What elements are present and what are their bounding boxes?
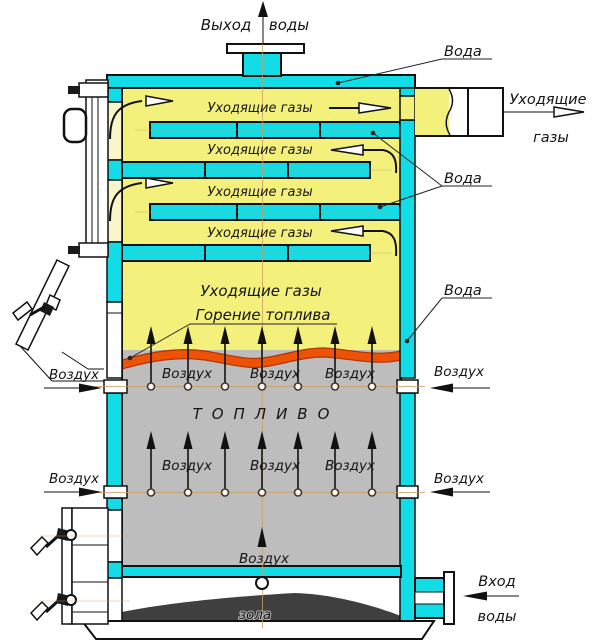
- air-arrow-left-upper: [44, 384, 102, 393]
- water-outlet-label-2: воды: [269, 16, 309, 34]
- air-label-left-lower: Воздух: [49, 471, 100, 487]
- air-label-right-upper: Воздух: [434, 364, 485, 380]
- grate-bar: [122, 566, 401, 577]
- flue-gases-row-1: Уходящие газы: [207, 101, 312, 116]
- combustion-label: Горение топлива: [196, 306, 331, 324]
- fuel-loading-door[interactable]: [13, 260, 104, 381]
- ash-label: зола: [239, 607, 271, 623]
- air-arrow-right-upper: [430, 384, 490, 393]
- air-arrow-right-lower: [430, 488, 490, 497]
- right-wall: [400, 88, 415, 622]
- ash-pit-peephole: [256, 577, 268, 589]
- left-wall: [107, 88, 122, 622]
- boiler-diagram: Выход воды Вода Вода Вода Уходящие газы …: [0, 0, 600, 641]
- water-inlet-label-2: воды: [478, 609, 517, 625]
- flue-exit-label-2: газы: [533, 130, 569, 146]
- inlet-flange: [444, 572, 454, 624]
- air-label-left-upper: Воздух: [49, 367, 100, 383]
- air-label-right-lower: Воздух: [434, 471, 485, 487]
- water-inlet-label-1: Вход: [478, 574, 515, 590]
- water-outlet-arrow: [258, 1, 268, 44]
- ash-door[interactable]: [31, 508, 108, 624]
- flue-exit-label-1: Уходящие: [509, 92, 586, 108]
- water-callout-3: Вода: [444, 283, 482, 299]
- water-callout-2: Вода: [444, 171, 482, 187]
- door-handle[interactable]: [64, 109, 86, 142]
- flue-exit-pipe: [400, 88, 503, 136]
- flue-gases-row-3: Уходящие газы: [207, 185, 312, 200]
- water-inlet-pipe: [415, 572, 454, 624]
- air-label-bed2-c: Воздух: [325, 458, 376, 474]
- flue-exit-arrow: [504, 107, 584, 117]
- air-label-bottom-center: Воздух: [239, 551, 290, 567]
- air-label-bed2-a: Воздух: [162, 458, 213, 474]
- flue-gases-row-4: Уходящие газы: [207, 226, 312, 241]
- air-label-bed1-c: Воздух: [325, 366, 376, 382]
- flue-gases-row-2: Уходящие газы: [207, 143, 312, 158]
- water-outlet-pipe: [227, 44, 304, 76]
- air-label-bed1-a: Воздух: [162, 366, 213, 382]
- water-inlet-arrow: [463, 592, 519, 601]
- water-outlet-label-1: Выход: [201, 16, 252, 34]
- chimney-stub: [468, 88, 503, 136]
- door-bolt-bottom: [68, 246, 80, 254]
- air-arrow-left-lower: [44, 488, 102, 497]
- base-pan: [82, 621, 434, 639]
- door-bolt-top: [68, 86, 80, 94]
- air-label-bed2-b: Воздух: [250, 458, 301, 474]
- flue-gases-chamber: Уходящие газы: [200, 282, 322, 300]
- fuel-label: ТОПЛИВО: [193, 405, 340, 423]
- upper-cleaning-door[interactable]: [64, 80, 108, 257]
- air-label-bed1-b: Воздух: [250, 366, 301, 382]
- outlet-flange: [227, 44, 304, 53]
- water-callout-1: Вода: [444, 44, 482, 60]
